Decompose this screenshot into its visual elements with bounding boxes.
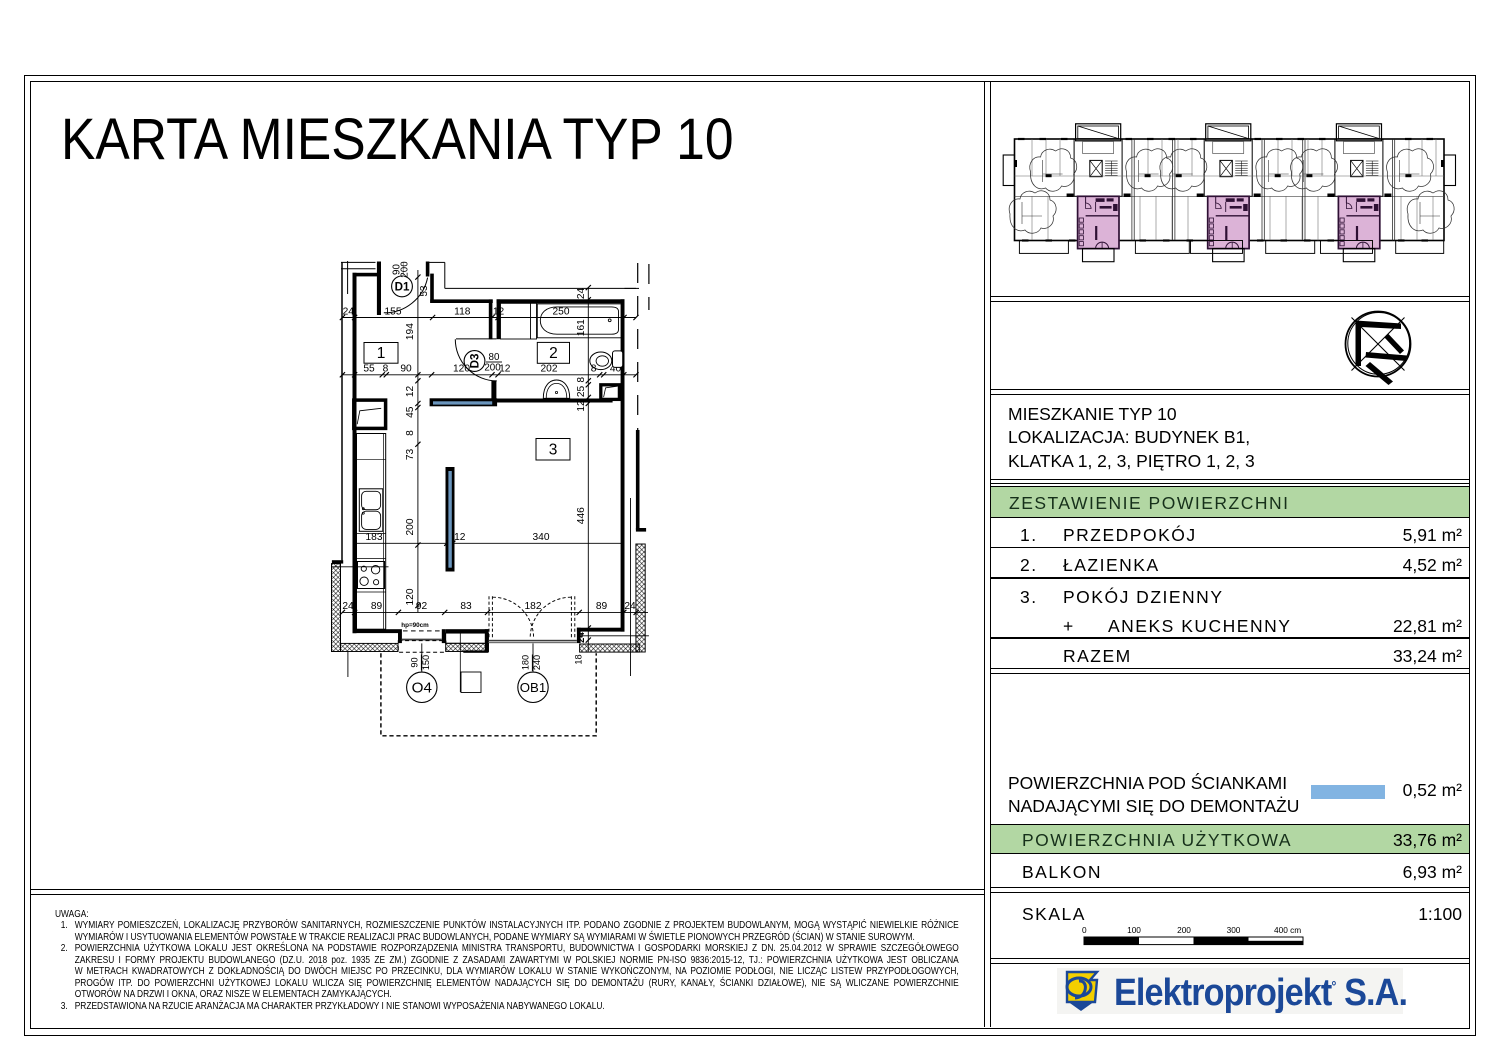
svg-text:80: 80: [489, 352, 500, 363]
svg-text:OB1: OB1: [520, 680, 546, 695]
svg-text:200: 200: [400, 261, 411, 278]
svg-text:180: 180: [520, 655, 530, 670]
svg-text:24: 24: [576, 633, 586, 643]
svg-text:12: 12: [454, 532, 466, 543]
svg-text:446: 446: [576, 507, 587, 524]
svg-text:150: 150: [421, 655, 431, 670]
svg-text:hp=90cm: hp=90cm: [401, 622, 429, 629]
svg-text:200: 200: [405, 518, 416, 535]
svg-text:D1: D1: [395, 281, 410, 294]
svg-text:8: 8: [576, 377, 587, 383]
svg-text:12: 12: [499, 364, 511, 375]
svg-text:89: 89: [596, 601, 608, 612]
svg-text:182: 182: [525, 601, 542, 612]
svg-text:83: 83: [460, 601, 472, 612]
svg-text:90: 90: [400, 364, 412, 375]
svg-text:12: 12: [405, 386, 416, 398]
svg-text:202: 202: [541, 364, 558, 375]
svg-text:24: 24: [576, 288, 587, 300]
svg-text:3: 3: [549, 442, 558, 459]
svg-text:8: 8: [383, 364, 389, 375]
svg-text:25: 25: [576, 386, 587, 398]
svg-text:45: 45: [405, 406, 416, 418]
svg-text:161: 161: [576, 319, 587, 336]
svg-text:90: 90: [409, 657, 419, 667]
svg-text:8: 8: [405, 430, 416, 436]
svg-text:194: 194: [405, 323, 416, 340]
svg-text:250: 250: [553, 306, 570, 317]
svg-text:D3: D3: [468, 353, 481, 368]
svg-text:24: 24: [342, 601, 354, 612]
svg-text:200: 200: [484, 363, 501, 374]
svg-text:2: 2: [549, 345, 558, 362]
svg-text:73: 73: [405, 449, 416, 461]
svg-text:53: 53: [419, 285, 430, 296]
svg-text:1: 1: [377, 345, 386, 362]
svg-text:340: 340: [533, 532, 550, 543]
svg-text:18: 18: [574, 654, 584, 664]
svg-text:55: 55: [363, 364, 375, 375]
svg-text:240: 240: [532, 655, 542, 670]
svg-text:120: 120: [405, 588, 416, 605]
svg-text:89: 89: [371, 601, 383, 612]
svg-text:118: 118: [454, 306, 471, 317]
svg-text:O4: O4: [412, 679, 432, 696]
